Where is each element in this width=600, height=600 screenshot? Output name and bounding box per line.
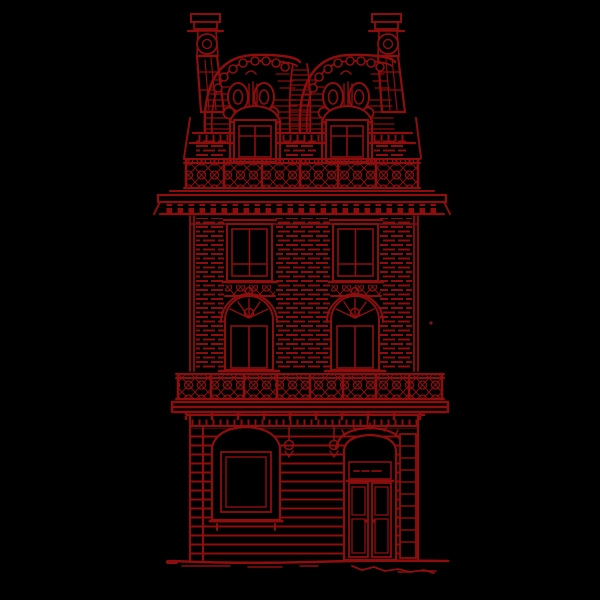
ground-floor xyxy=(190,415,418,561)
second-floor-balcony xyxy=(172,374,448,420)
building-illustration xyxy=(0,0,600,600)
scene xyxy=(0,0,600,600)
entrance-door xyxy=(336,423,404,561)
attic-balcony-railing xyxy=(184,159,420,188)
brick-pilaster-right xyxy=(380,218,412,370)
dormer-window-right xyxy=(322,106,372,162)
brick-pilaster-left xyxy=(196,218,224,370)
dormer-window xyxy=(230,106,280,162)
brick-pier-center xyxy=(276,218,330,370)
main-cornice xyxy=(154,191,450,214)
shop-window xyxy=(210,427,282,530)
stray-ink-dot xyxy=(429,321,432,324)
frieze-ticks xyxy=(191,417,417,425)
dentil-row xyxy=(163,204,441,213)
door-sidelight xyxy=(400,434,416,558)
